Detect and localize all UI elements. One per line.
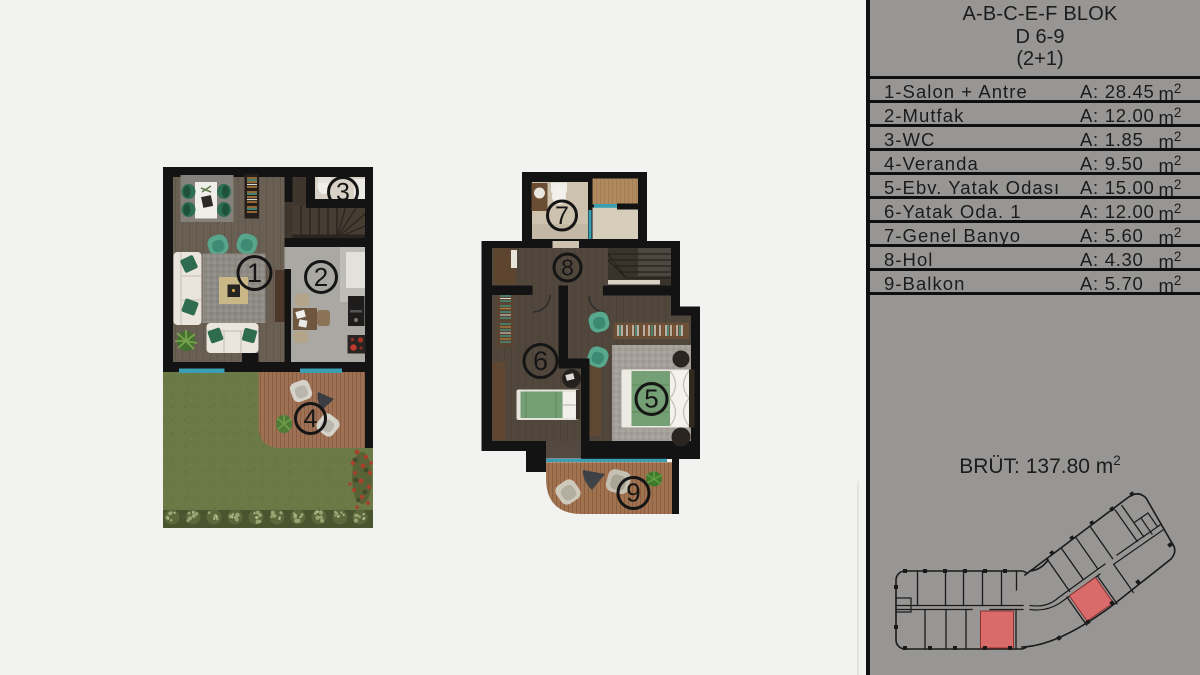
svg-text:1: 1 — [247, 258, 262, 288]
svg-text:2: 2 — [314, 262, 328, 292]
svg-text:6: 6 — [533, 346, 548, 376]
svg-text:4: 4 — [304, 405, 318, 433]
svg-text:5: 5 — [644, 384, 658, 414]
svg-text:8: 8 — [561, 255, 574, 281]
svg-text:3: 3 — [336, 179, 350, 207]
svg-text:7: 7 — [555, 202, 569, 230]
svg-text:9: 9 — [626, 478, 640, 508]
